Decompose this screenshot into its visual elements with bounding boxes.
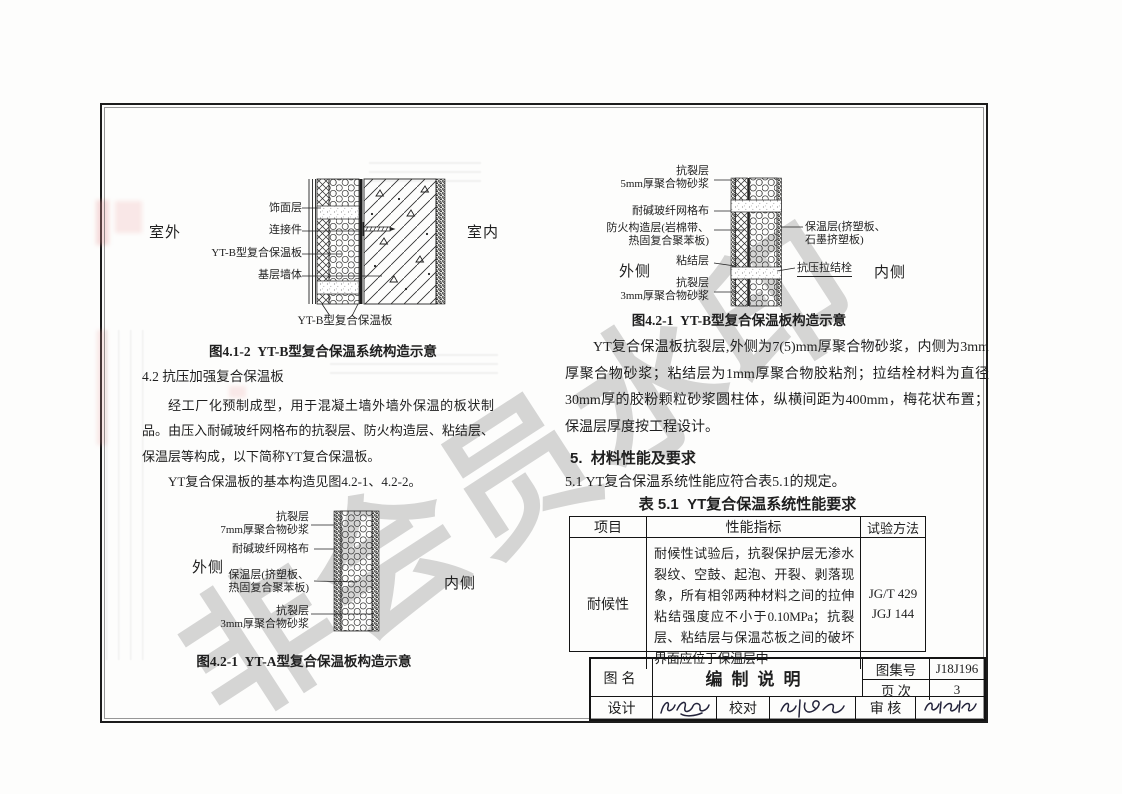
atlas-number-label: 图集号 [863, 659, 930, 679]
layer-label-crack-5mm: 抗裂层 5mm厚聚合物砂浆 [620, 165, 709, 190]
design-label: 设计 [591, 697, 653, 719]
title-block: 图名 编制说明 图集号 J18J196 页 次 3 设计 [589, 657, 986, 721]
figure-caption: 图4.1-2 YT-B型复合保温系统构造示意 [164, 340, 482, 360]
indicator-text: 耐候性试验后，抗裂保护层无渗水裂纹、空鼓、起泡、开裂、剥落现象，所有相邻两种材料… [647, 538, 860, 669]
layer-label-crack-7mm: 抗裂层 7mm厚聚合物砂浆 [220, 511, 309, 536]
layer-label-crack-3mm: 抗裂层 3mm厚聚合物砂浆 [220, 605, 309, 630]
layer-label-insulation: 保温层(挤塑板、 热固复合聚苯板) [228, 569, 309, 594]
performance-table: 项目 性能指标 试验方法 耐候性 耐候性试验后，抗裂保护层无渗水裂纹、空鼓、起泡… [569, 516, 926, 652]
fig-name-label: 图名 [591, 659, 653, 696]
header-indicator: 性能指标 [647, 517, 861, 537]
figure-yt-b-system: 室外 室内 饰面层 连接件 YT-B型复合保温板 基层墙体 YT-B型复合保温板… [144, 174, 502, 374]
layer-label-crack-3mm: 抗裂层 3mm厚聚合物砂浆 [620, 277, 709, 302]
table-row: 耐候性 耐候性试验后，抗裂保护层无渗水裂纹、空鼓、起泡、开裂、剥落现象，所有相邻… [570, 538, 925, 669]
side-label-outer: 外侧 [192, 556, 224, 577]
proof-signature [770, 697, 856, 719]
figure-caption: 图4.2-1 YT-B型复合保温板构造示意 [594, 309, 884, 329]
section-4-2-heading: 4.2 抗压加强复合保温板 [142, 364, 494, 390]
bottom-board-label: YT-B型复合保温板 [264, 315, 426, 328]
drawing-frame: 非会员水印 [100, 103, 988, 723]
section-4-2: 4.2 抗压加强复合保温板 经工厂化预制成型，用于混凝土墙外墙外保温的板状制品。… [142, 364, 494, 495]
layer-label-mesh: 耐碱玻纤网格布 [232, 543, 309, 556]
cell-item: 耐候性 [570, 538, 647, 669]
layer-label-insulation: 保温层(挤塑板、 石墨挤塑板) [805, 221, 886, 246]
side-label-outdoor: 室外 [149, 221, 181, 242]
atlas-page-cells: 图集号 J18J196 页 次 3 [863, 659, 984, 696]
header-item: 项目 [570, 517, 647, 537]
side-label-indoor: 室内 [467, 221, 499, 242]
atlas-number: J18J196 [930, 659, 984, 679]
cell-indicator: 耐候性试验后，抗裂保护层无渗水裂纹、空鼓、起泡、开裂、剥落现象，所有相邻两种材料… [647, 538, 861, 669]
review-label: 审 核 [856, 697, 916, 719]
design-signature [653, 697, 717, 719]
pink-bleed-smudge [97, 330, 107, 445]
section-5-heading: 5. 材料性能及要求 [570, 447, 696, 468]
layer-label-bonding: 粘结层 [676, 255, 709, 268]
layer-label-connector: 连接件 [269, 224, 302, 237]
figure-yt-b-board: 外侧 内侧 抗裂层 5mm厚聚合物砂浆 耐碱玻纤网格布 防火构造层(岩棉带、 热… [594, 163, 924, 333]
table-header-row: 项目 性能指标 试验方法 [570, 517, 925, 538]
fig-name: 编制说明 [653, 659, 863, 696]
header-method: 试验方法 [861, 517, 925, 537]
layer-label-base-wall: 基层墙体 [258, 269, 302, 282]
layer-label-finish: 饰面层 [269, 202, 302, 215]
layer-label-anchor: 抗压拉结栓 [797, 262, 852, 277]
scanned-atlas-page: 非会员水印 [0, 0, 1122, 794]
table-title: 表 5.1 YT复合保温系统性能要求 [569, 493, 926, 514]
side-label-inner: 内侧 [874, 261, 906, 282]
side-label-inner: 内侧 [444, 572, 476, 593]
clause-5-1: 5.1 YT复合保温系统性能应符合表5.1的规定。 [565, 471, 846, 491]
title-block-bottom: 设计 校对 审 核 [591, 697, 984, 719]
layer-label-mesh: 耐碱玻纤网格布 [632, 205, 709, 218]
figure-caption: 图4.2-1 YT-A型复合保温板构造示意 [154, 650, 454, 670]
proof-label: 校对 [717, 697, 770, 719]
title-block-top: 图名 编制说明 图集号 J18J196 页 次 3 [591, 659, 984, 697]
paragraph: YT复合保温板的基本构造见图4.2-1、4.2-2。 [142, 469, 494, 495]
review-signature [916, 697, 984, 719]
cell-method: JG/T 429 JGJ 144 [861, 538, 925, 669]
layer-label-fireproof: 防火构造层(岩棉带、 热固复合聚苯板) [606, 222, 709, 247]
figure-yt-a-board: 外侧 内侧 抗裂层 7mm厚聚合物砂浆 耐碱玻纤网格布 保温层(挤塑板、 热固复… [144, 504, 484, 676]
paragraph: 经工厂化预制成型，用于混凝土墙外墙外保温的板状制品。由压入耐碱玻纤网格布的抗裂层… [142, 393, 494, 470]
pink-bleed-smudge [115, 201, 142, 233]
paragraph-right: YT复合保温板抗裂层,外侧为7(5)mm厚聚合物砂浆，内侧为3mm厚聚合物砂浆；… [565, 335, 989, 441]
pink-bleed-smudge [96, 200, 109, 245]
layer-label-board: YT-B型复合保温板 [211, 247, 302, 260]
